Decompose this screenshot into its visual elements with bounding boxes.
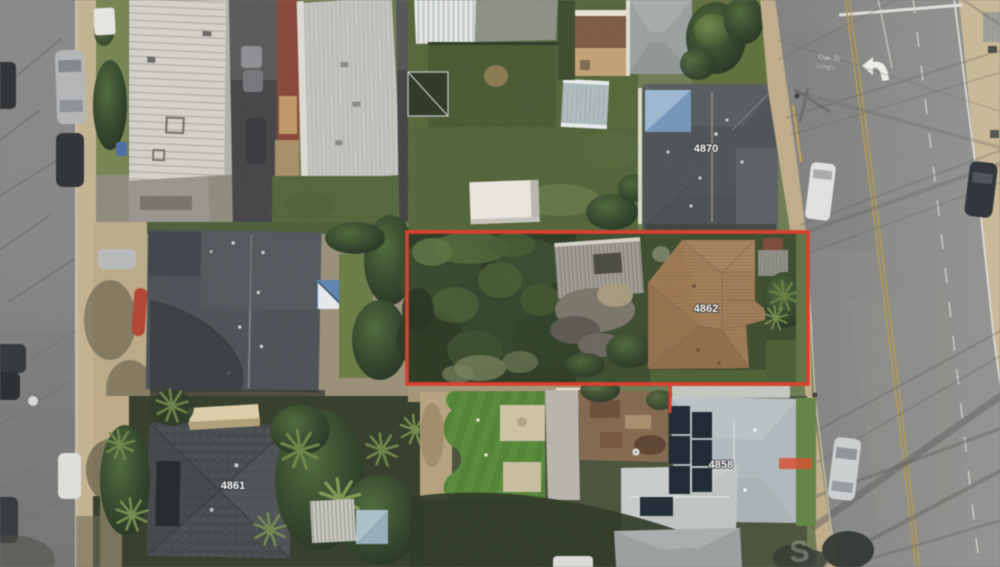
svg-text:S: S [789,535,811,567]
